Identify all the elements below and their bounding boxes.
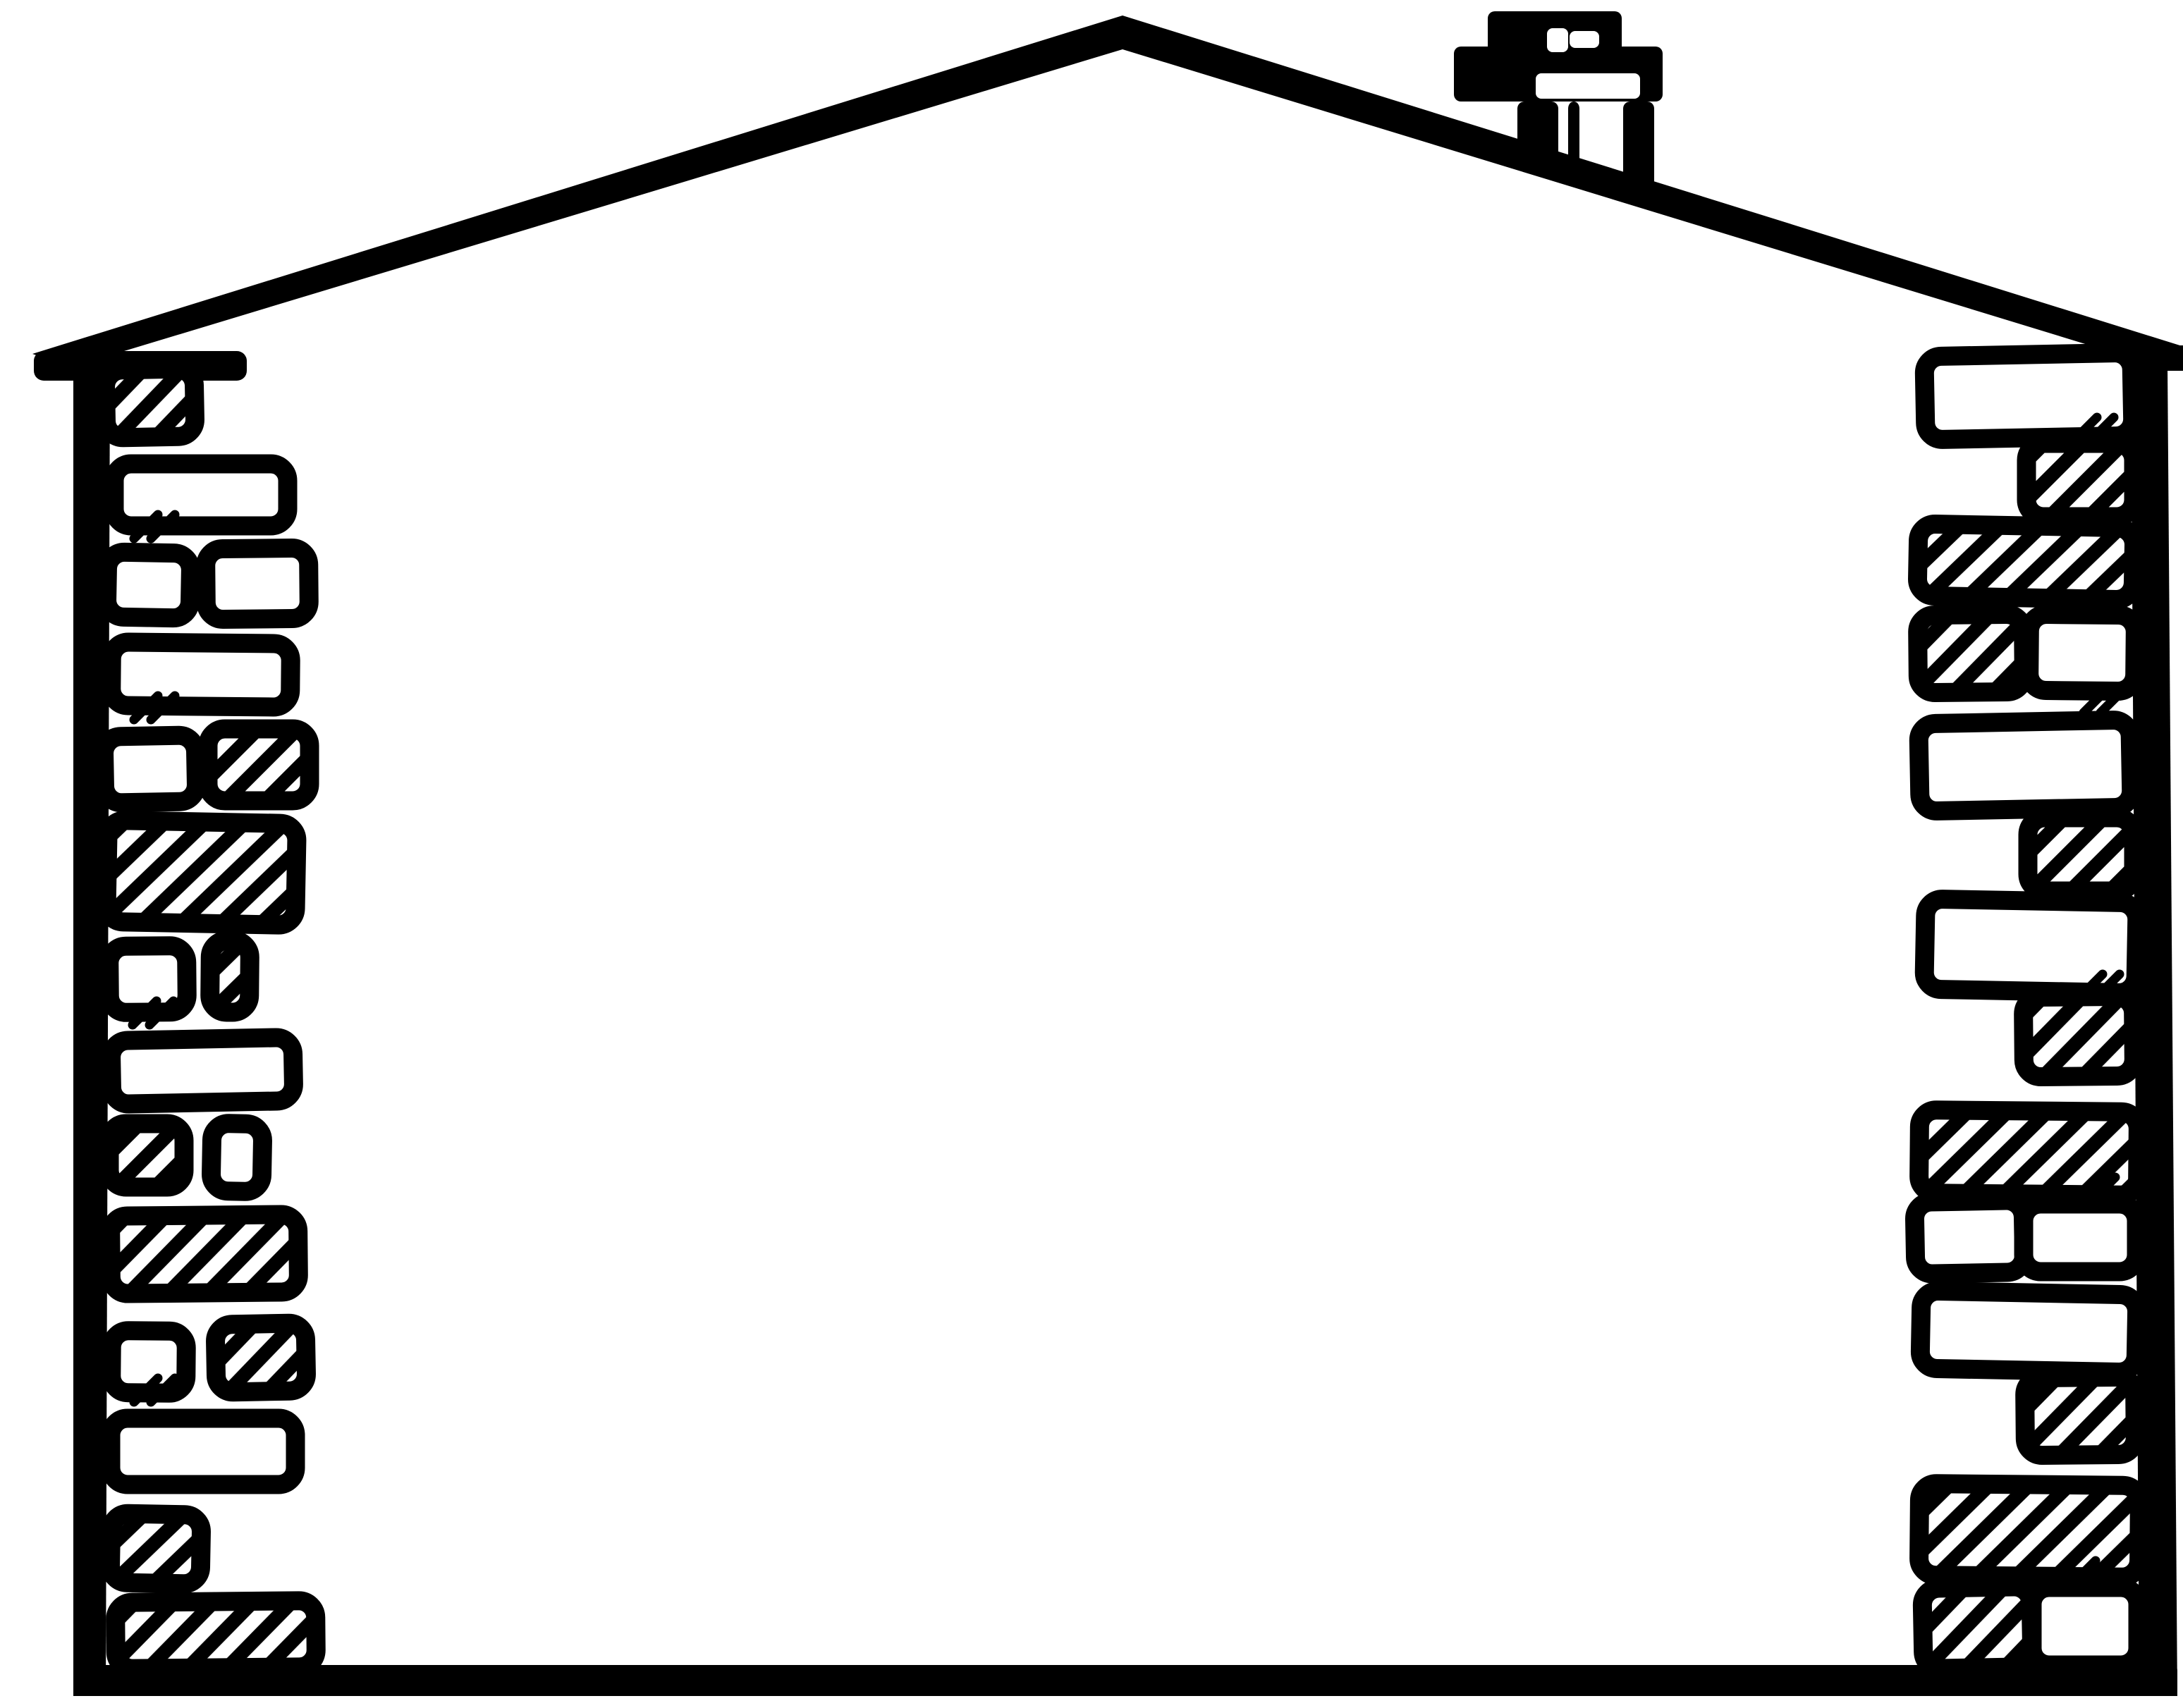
plain-brick-outline: [111, 1418, 295, 1485]
plain-brick-outline: [111, 642, 291, 707]
house-clipart-drawing: [28, 11, 2183, 1697]
right-brick: [1917, 614, 2024, 692]
plain-brick-outline: [211, 1123, 263, 1191]
brick-hatching: [216, 947, 244, 1006]
left-brick: [211, 1123, 263, 1191]
plain-brick-outline: [1914, 1200, 2024, 1274]
chimney-block: [1517, 102, 1558, 169]
right-brick: [1922, 1587, 2032, 1669]
left-brick: [104, 735, 197, 803]
brick-hatching: [2030, 1002, 2128, 1070]
right-brick: [1917, 524, 2134, 600]
right-brick: [2028, 818, 2134, 891]
left-brick: [105, 369, 195, 438]
plain-brick-outline: [2029, 614, 2135, 691]
left-brick: [116, 1601, 317, 1669]
chimney-notch: [1570, 31, 1599, 48]
left-brick: [111, 1418, 295, 1485]
brick-hatching: [1928, 1593, 2026, 1663]
left-brick: [109, 1124, 184, 1187]
left-brick: [210, 940, 250, 1013]
brick-hatching: [1924, 620, 2018, 686]
house-frame-figure: [28, 11, 2183, 1697]
brick-hatching: [113, 827, 291, 919]
foundation-band: [73, 1665, 2177, 1696]
brick-hatching: [2033, 450, 2127, 510]
chimney-block: [1568, 102, 1579, 168]
plain-brick-outline: [111, 1038, 294, 1105]
right-brick: [1919, 720, 2132, 811]
left-brick: [208, 729, 310, 801]
right-brick: [1920, 1291, 2137, 1372]
brick-hatching: [214, 735, 303, 794]
brick-hatching: [1924, 530, 2128, 594]
brick-hatching: [2031, 1383, 2129, 1449]
chimney-block: [1623, 102, 1654, 188]
right-brick: [1924, 899, 2137, 993]
right-brick: [2024, 1204, 2136, 1272]
left-brick: [215, 1323, 307, 1392]
brick-hatching: [221, 1329, 300, 1386]
plain-brick-outline: [104, 735, 197, 803]
left-brick: [110, 1513, 202, 1584]
left-brick: [111, 642, 291, 707]
plain-brick-outline: [2024, 1204, 2136, 1272]
left-brick: [106, 820, 298, 925]
plain-brick-outline: [206, 548, 310, 619]
left-brick: [206, 548, 310, 619]
brick-hatching: [2034, 824, 2127, 885]
brick-hatching: [122, 1607, 310, 1663]
brick-hatching: [111, 375, 188, 431]
right-brick: [2032, 1587, 2138, 1665]
chimney-notch: [1536, 73, 1640, 99]
left-brick: [106, 552, 191, 618]
plain-brick-outline: [1920, 1291, 2137, 1372]
brick-hatching: [116, 1520, 195, 1578]
chimney-notch: [1547, 28, 1568, 52]
plain-brick-outline: [1919, 720, 2132, 811]
right-brick: [2023, 996, 2134, 1076]
plain-brick-outline: [2032, 1587, 2138, 1665]
left-brick: [110, 1215, 298, 1294]
right-brick: [2024, 1377, 2135, 1455]
right-brick: [1914, 1200, 2024, 1274]
brick-hatching: [116, 1130, 178, 1181]
plain-brick-outline: [114, 464, 288, 526]
right-brick: [2029, 614, 2135, 691]
plain-brick-outline: [1924, 899, 2137, 993]
left-brick: [114, 464, 288, 526]
brick-hatching: [117, 1221, 293, 1287]
left-brick: [111, 1038, 294, 1105]
brick-hatching: [1925, 1490, 2133, 1571]
right-brick: [2026, 443, 2134, 517]
plain-brick-outline: [106, 552, 191, 618]
